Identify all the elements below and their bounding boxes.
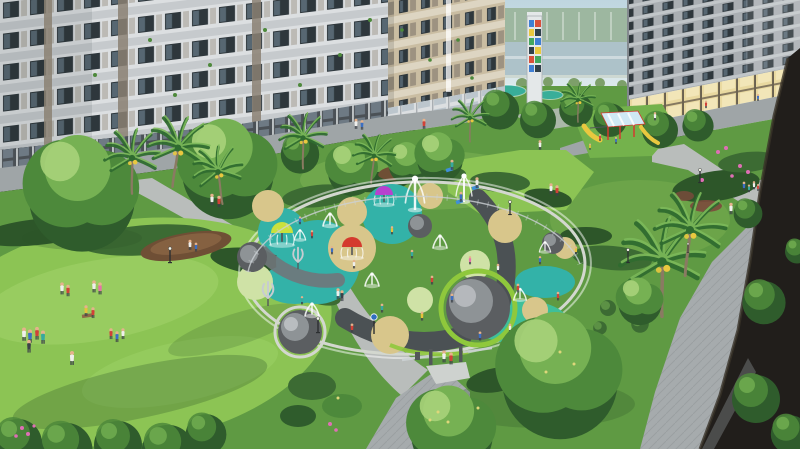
mosaic-tower: [527, 12, 542, 116]
shrub: [288, 372, 336, 400]
building-center-pier: [446, 0, 451, 92]
topiary-ball: [600, 300, 616, 316]
courtyard-rendering: Aerial 3D architectural rendering of a r…: [0, 0, 800, 449]
water-shimmer: [488, 56, 634, 59]
facade-accent-strip: [118, 0, 128, 137]
distant-layer: [488, 8, 634, 90]
shrub: [322, 394, 362, 418]
distant-buildings: [488, 8, 634, 44]
building-center-corner-shade: [388, 0, 394, 108]
fountain-dome-large: [441, 271, 515, 345]
lake: [488, 42, 634, 78]
facade-accent-strip: [252, 0, 261, 122]
fountain-dome: [237, 242, 267, 272]
fountain-mound: [408, 214, 432, 238]
facade-accent-strip: [44, 0, 52, 146]
rendering-stage: Aerial 3D architectural rendering of a r…: [0, 0, 800, 449]
far-shore-edge: [488, 75, 634, 78]
shrub: [280, 405, 316, 427]
